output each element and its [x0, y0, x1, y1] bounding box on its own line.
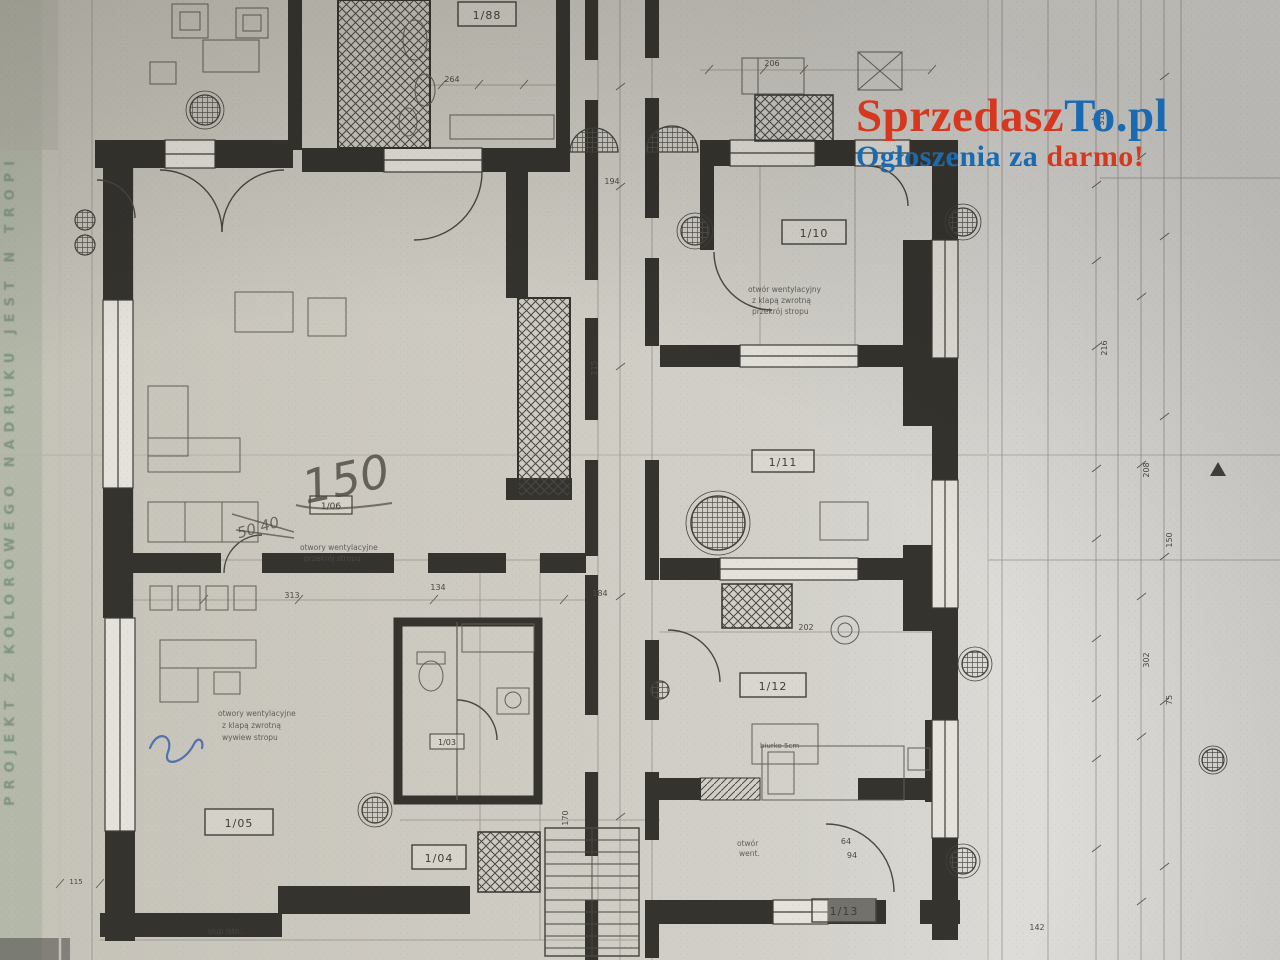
watermark: SprzedaszTo.pl Ogłoszenia za darmo!: [856, 92, 1168, 172]
watermark-brand: SprzedaszTo.pl: [856, 92, 1168, 141]
left-edge-stamp-text: PROJEKT Z KOLOROWEGO NADRUKU JEST N TROP…: [3, 0, 33, 960]
watermark-brand-red: Sprzedasz: [856, 90, 1064, 142]
watermark-tagline-red: darmo!: [1046, 140, 1144, 173]
watermark-tagline: Ogłoszenia za darmo!: [856, 141, 1168, 172]
floorplan-photo: 264 206 194 115 134 184 313 202 170 64 9…: [0, 0, 1280, 960]
watermark-tagline-blue: Ogłoszenia za: [856, 140, 1038, 173]
watermark-brand-blue: To.pl: [1064, 90, 1168, 142]
